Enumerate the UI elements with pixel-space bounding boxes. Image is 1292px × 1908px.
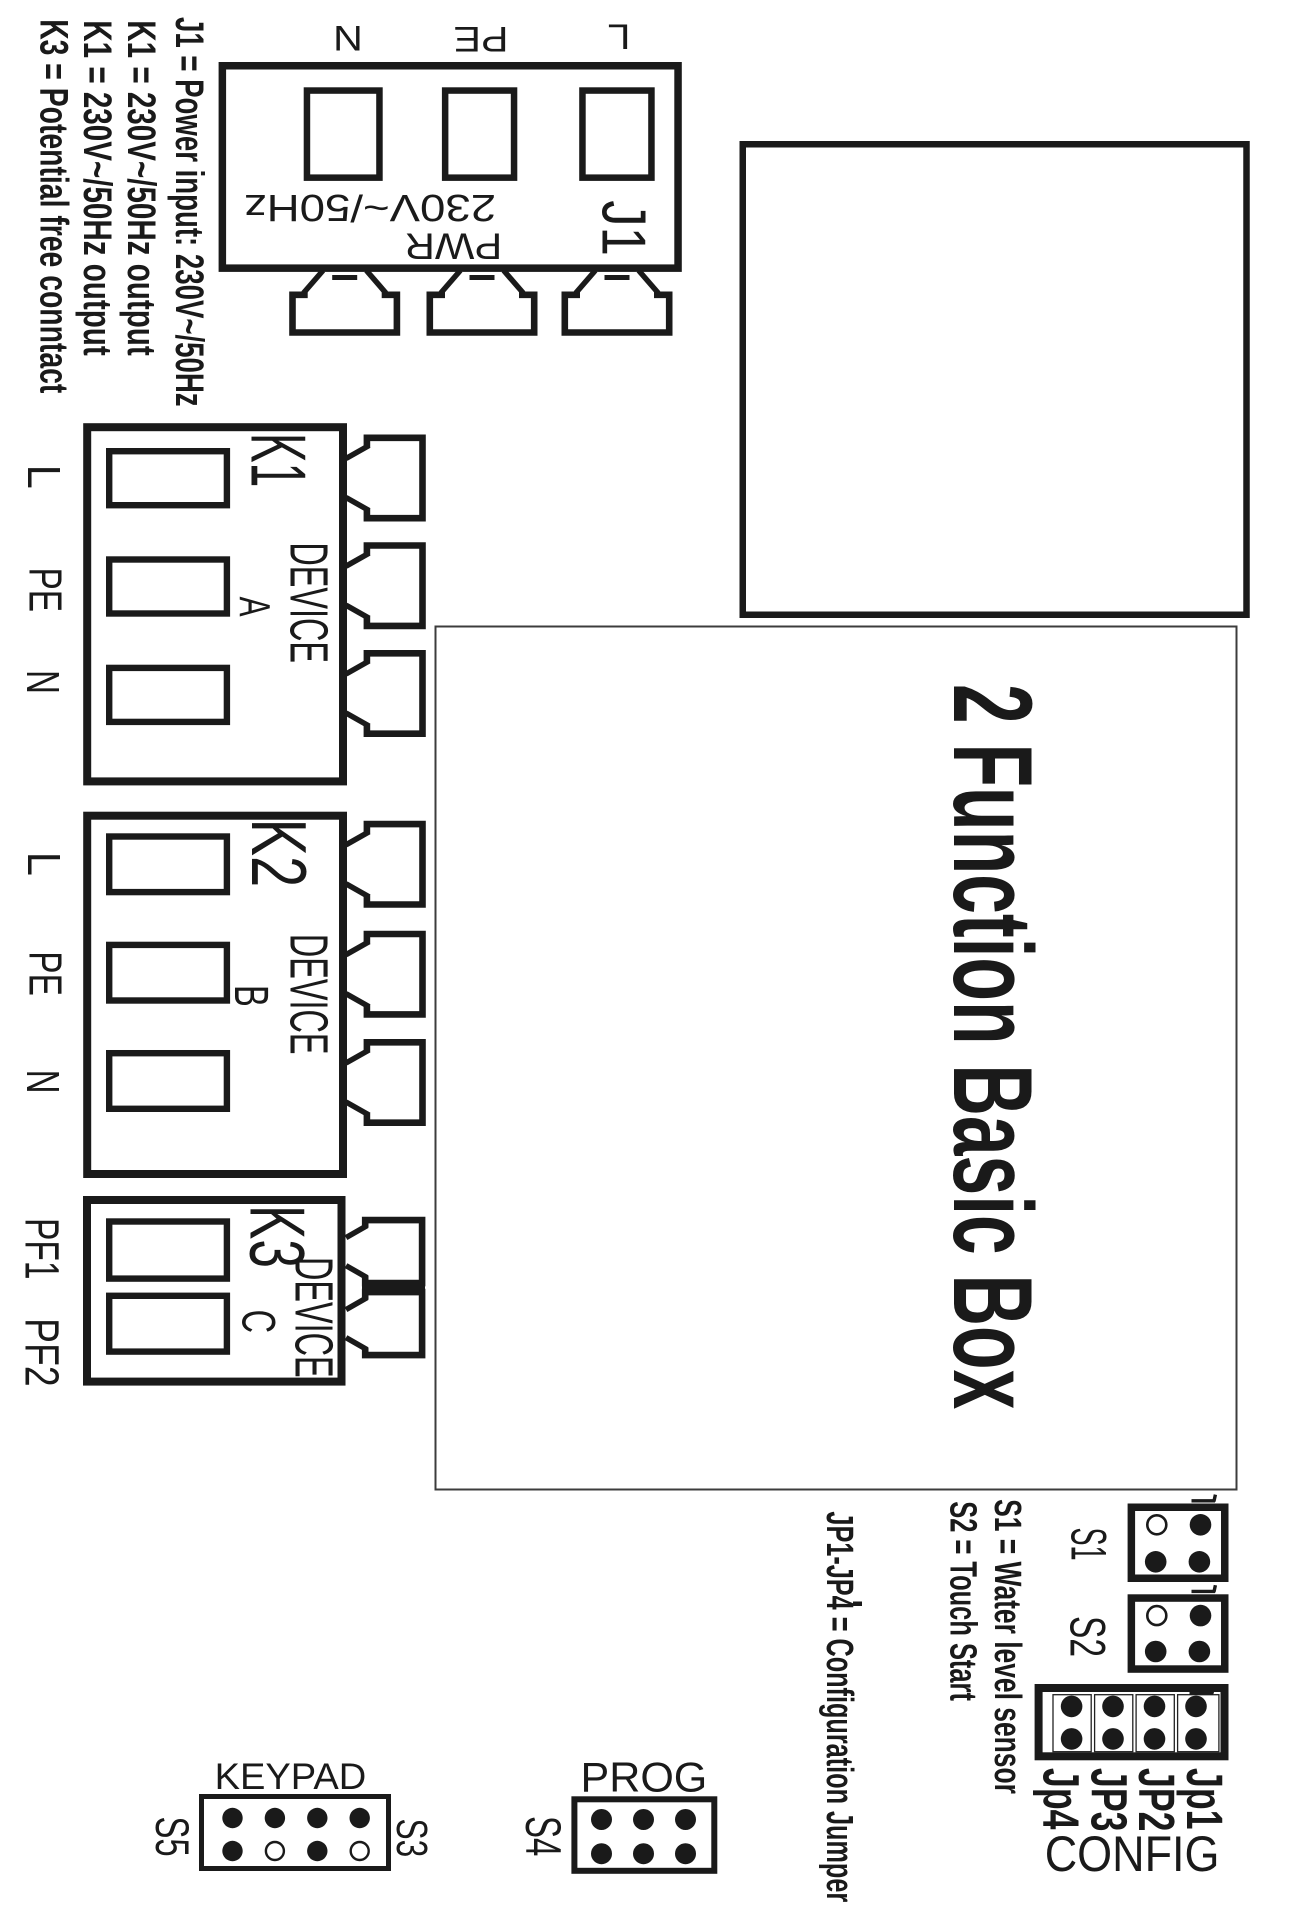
svg-text:N: N: [333, 18, 363, 57]
svg-text:S2 = Touch Start: S2 = Touch Start: [942, 1501, 984, 1701]
svg-text:K3 = Potential free conntact: K3 = Potential free conntact: [31, 19, 75, 393]
svg-text:2 Function Basic Box: 2 Function Basic Box: [930, 684, 1055, 1409]
svg-text:A: A: [230, 597, 279, 618]
svg-text:L: L: [18, 465, 70, 489]
svg-text:K1 = 230V~/50Hz output: K1 = 230V~/50Hz output: [75, 20, 119, 356]
svg-text:230V~/50Hz: 230V~/50Hz: [244, 187, 496, 230]
svg-text:S3: S3: [387, 1819, 436, 1858]
svg-text:JP1-JP4 = Configuration Jumper: JP1-JP4 = Configuration Jumper: [819, 1511, 861, 1902]
svg-text:K1: K1: [234, 433, 320, 487]
svg-text:J1: J1: [588, 200, 657, 256]
svg-text:DEVICE: DEVICE: [283, 1257, 342, 1378]
svg-text:S4: S4: [516, 1816, 571, 1856]
svg-text:PF2: PF2: [14, 1318, 68, 1387]
svg-text:S2: S2: [1059, 1616, 1115, 1657]
svg-text:DEVICE: DEVICE: [279, 542, 338, 663]
svg-text:S1 = Water level sensor: S1 = Water level sensor: [987, 1499, 1030, 1794]
svg-text:PE: PE: [19, 951, 70, 996]
svg-text:S5: S5: [146, 1817, 199, 1857]
svg-text:C: C: [232, 1310, 286, 1333]
svg-text:S1: S1: [1060, 1528, 1116, 1561]
svg-text:PROG: PROG: [581, 1753, 708, 1800]
svg-text:B: B: [224, 985, 278, 1007]
svg-text:J1 = Power input: 230V~/50Hz: J1 = Power input: 230V~/50Hz: [166, 17, 210, 407]
svg-text:K2: K2: [235, 819, 322, 888]
svg-text:PE: PE: [453, 19, 508, 58]
svg-text:DEVICE: DEVICE: [279, 934, 338, 1055]
svg-text:N: N: [17, 1070, 67, 1094]
svg-text:L: L: [608, 16, 631, 55]
svg-text:K1 = 230V~/50Hz output: K1 = 230V~/50Hz output: [119, 20, 163, 356]
svg-text:N: N: [17, 670, 67, 694]
svg-text:PF1: PF1: [15, 1218, 69, 1280]
svg-text:CONFIG: CONFIG: [1045, 1826, 1220, 1882]
svg-text:L: L: [18, 852, 70, 876]
svg-text:PE: PE: [19, 568, 70, 613]
svg-text:Jp4: Jp4: [1032, 1768, 1089, 1830]
svg-text:KEYPAD: KEYPAD: [215, 1756, 367, 1797]
svg-text:PWR: PWR: [405, 225, 503, 266]
